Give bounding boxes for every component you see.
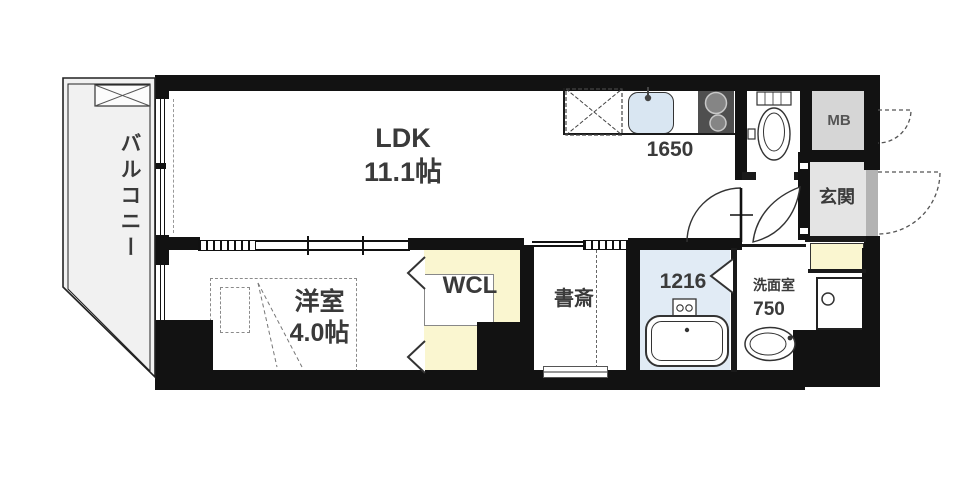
study-window bbox=[543, 366, 608, 378]
wall-mid-c bbox=[628, 238, 742, 250]
shoe-cabinet bbox=[810, 243, 864, 272]
walk-in-closet-area-lower bbox=[424, 324, 477, 372]
sliding-door-tick-1 bbox=[307, 236, 309, 255]
gas-stove bbox=[698, 89, 734, 135]
toilet-door-leaf bbox=[753, 187, 800, 242]
floor-plan: バルコニー LDK 11.1帖 1650 MB 玄関 洋室 4.0帖 WCL 書… bbox=[0, 0, 966, 502]
sliding-door-tick-2 bbox=[362, 236, 364, 255]
curtain-line bbox=[173, 99, 174, 233]
ldk-name: LDK bbox=[318, 121, 488, 155]
balcony-window-western-room bbox=[155, 265, 165, 320]
closet-folding-door-upper bbox=[408, 257, 425, 289]
wall-shoebox-bottom bbox=[808, 269, 866, 273]
wall-wcl-corner bbox=[477, 322, 524, 372]
wall-left-mass bbox=[155, 320, 213, 378]
ldk-size: 11.1帖 bbox=[318, 155, 488, 189]
furniture-outline bbox=[220, 287, 250, 333]
mb-door-arc bbox=[878, 110, 911, 143]
meter-box-label: MB bbox=[800, 112, 878, 130]
washbasin-icon bbox=[745, 328, 795, 361]
wall-corner-bottom-right bbox=[793, 330, 880, 387]
louver-window bbox=[198, 240, 258, 251]
western-room-label: 洋室 4.0帖 bbox=[252, 287, 387, 349]
wall-hall-washroom bbox=[742, 244, 806, 247]
wall-bottom bbox=[155, 370, 805, 390]
study-label: 書斎 bbox=[532, 287, 616, 311]
western-room-size: 4.0帖 bbox=[252, 318, 387, 349]
entrance-door-arc bbox=[878, 172, 940, 234]
wall-mb-bottom bbox=[800, 150, 880, 162]
kitchen-counter-edge-bottom bbox=[563, 133, 735, 135]
toilet-icon bbox=[748, 92, 791, 160]
kitchen-counter-edge-left bbox=[563, 88, 565, 135]
wall-entrance-bottom bbox=[805, 236, 866, 242]
wall-right-mid bbox=[864, 236, 880, 248]
wall-left-top bbox=[155, 75, 169, 99]
wall-mid-a bbox=[155, 237, 200, 250]
ldk-hall-door bbox=[687, 188, 753, 242]
entrance-label: 玄関 bbox=[806, 187, 868, 209]
kitchen-dimension-label: 1650 bbox=[620, 137, 720, 162]
evacuation-hatch-icon bbox=[95, 85, 150, 106]
wall-kitchen-toilet bbox=[735, 75, 747, 180]
kitchen-sink bbox=[628, 92, 674, 134]
bathroom-size-label: 1216 bbox=[640, 269, 726, 294]
wall-mid-b bbox=[408, 238, 524, 250]
washroom-dimension-label: 750 bbox=[736, 299, 802, 322]
washing-machine-pan bbox=[816, 277, 866, 330]
wall-right-lower bbox=[862, 248, 880, 332]
washroom-label: 洗面室 bbox=[736, 277, 812, 294]
walk-in-closet-label: WCL bbox=[424, 272, 516, 301]
sliding-door-hatch-study bbox=[583, 240, 630, 250]
western-room-name: 洋室 bbox=[252, 287, 387, 318]
wall-top bbox=[155, 75, 880, 91]
wall-toilet-bottom-left bbox=[742, 172, 756, 180]
window-mullion-tick bbox=[154, 163, 166, 169]
balcony-label: バルコニー bbox=[98, 132, 142, 342]
ldk-label: LDK 11.1帖 bbox=[318, 121, 488, 189]
bathroom-area bbox=[640, 250, 730, 370]
closet-folding-door-lower bbox=[408, 341, 425, 373]
wall-study-bath bbox=[626, 245, 640, 372]
sliding-door-ldk-western-room bbox=[256, 240, 410, 251]
refrigerator-space-icon bbox=[566, 89, 622, 135]
